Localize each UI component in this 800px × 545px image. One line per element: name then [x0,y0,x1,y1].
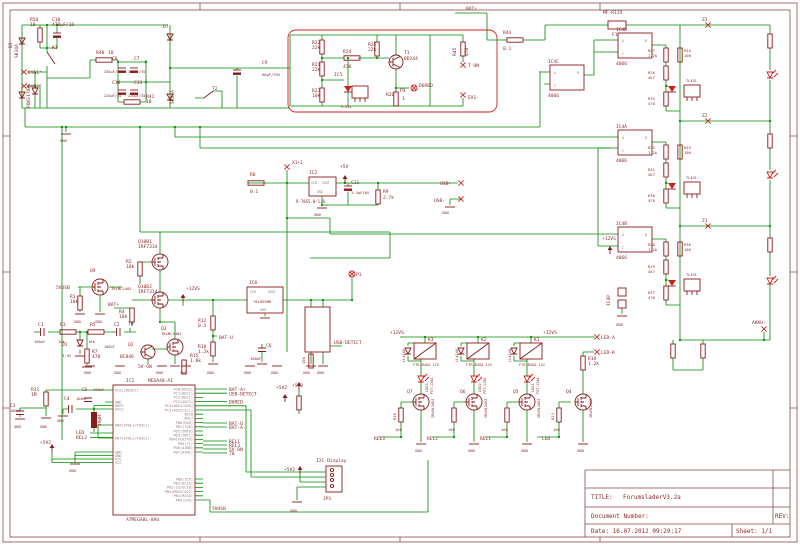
sch-label: PB6(XTAL1/TOSC1) [115,423,150,427]
sch-label: VIN [311,181,317,185]
sch-label: R5 [90,322,96,328]
sch-label: P6KE170AC [26,83,32,108]
sch-label: 22k [312,45,321,51]
sch-label: LED-A [601,335,615,341]
sch-label: K1 [534,337,540,343]
sch-label: FOT-120A [430,378,434,394]
sch-label: 4066 [616,61,627,67]
sch-label: IRLML2402 [537,399,541,418]
sch-label: 1.2k [588,361,599,367]
sch-label: +12VS [543,330,557,336]
sch-label: ATMEGA8L-8AU [126,517,159,523]
sch-label: IC4A [616,124,627,130]
sch-label: LED-K [601,350,615,356]
sch-label: BC846 [120,354,134,360]
sch-label: +5V2 [276,385,287,391]
sch-label: T0 [128,321,134,327]
sch-label: 10 [146,99,152,105]
sch-label: 10 [108,50,114,56]
sch-label: K3 [428,337,434,343]
sch-label: USB+ [440,181,451,187]
sch-label: GND [577,448,585,453]
tl431-reference [344,86,352,92]
sch-label: 470 [464,47,470,56]
sch-label: +5V [340,164,349,170]
sch-label: MEGA48-AI [148,378,173,384]
supply-arrow [343,175,348,183]
sch-label: GND [616,322,624,327]
sch-label: 10 [30,22,36,28]
sch-label: GND [271,370,279,375]
sch-label: 4066 [548,93,559,99]
sch-label: T1 [404,50,410,56]
sch-label: R24 [343,49,352,55]
sch-label: 10k [312,93,321,99]
sch-label: X1+1 [292,160,303,166]
eagle-schematic-window: R5010C10470µF/16K1D5SK34ADYN1"DYN2"P6KE1… [0,0,800,545]
sch-label: LED [542,436,551,442]
sch-label: 22k [312,67,321,73]
sch-label: 10k [88,339,96,344]
sch-label: AVCC [115,407,124,411]
sch-label: A [622,136,624,140]
sch-label: 330µF/35 [104,70,121,74]
sch-label: A [554,71,556,75]
sch-label: Q7 [407,389,413,395]
title-block: TITLE: ForumsladerV3.2a Document Number:… [585,470,790,537]
sch-label: GND [290,508,298,513]
sch-label: PD7(AIN1) [174,450,193,454]
sch-label: P3 [400,88,406,94]
sch-label: T0 [229,451,235,457]
sch-label: A [622,233,624,237]
sch-label: GND [156,370,164,375]
sch-label: R40 [96,50,105,56]
mosfet [152,254,168,270]
sch-label: GND [303,370,311,375]
sch-label: 470 [92,354,101,360]
sch-label: IC2 [309,170,318,176]
sch-label: +12VS [186,286,200,292]
sch-label: SK34A [170,90,176,104]
resistor [38,28,42,42]
sch-label: B [577,71,579,75]
sch-label: Q5 [513,389,519,395]
sch-label: 10k [70,299,79,305]
sch-label: 1.2k [198,349,209,355]
sch-label: 100 [684,247,692,252]
sch-label: Q6 [460,389,466,395]
sch-label: 68µF/35V [262,72,281,77]
sch-label: 4k7 [648,269,655,274]
sch-label: B [645,233,647,237]
sch-label: FOT-120A [536,378,540,394]
sch-label: GND [468,448,476,453]
sch-label: VOUT [322,181,330,185]
sch-label: +5V2 [292,383,303,389]
sch-label: GND [40,424,48,429]
sch-label: BAT+ [466,6,477,12]
sch-label: MF-R135 [603,10,623,16]
sch-label: DYN1" [28,70,42,76]
sheet-value: Sheet: 1/1 [736,528,773,535]
sch-label: 1.2k [648,150,658,155]
drawing-frame [3,3,797,542]
sch-label: IC4C [548,59,559,65]
sch-label: FTR-B4GA 12V [466,363,493,367]
sch-label: EX1- [468,95,479,101]
title-label: TITLE: [591,494,613,501]
ic3-box [305,307,330,352]
sch-label: AKKU- [752,320,766,326]
sch-label: USB-DETECT [334,340,362,346]
sch-label: R16 [392,412,397,420]
mcu-pin-labels: PC6(/RESET)GNDAREFAVCCPB6(XTAL1/TOSC1)PB… [115,387,193,502]
sch-label: GND [84,370,92,375]
sch-label: C2 [114,322,120,328]
sch-label: 100nF [93,387,105,392]
sch-label: Z3 [702,17,708,23]
sch-label: 0.1 [503,46,512,52]
transistor [389,55,403,69]
sch-label: 10k [126,264,135,270]
sch-label: IRLML2402 [111,286,132,291]
sch-label: 10k [501,427,509,432]
sch-label: 100nF [76,396,88,401]
doc-number-label: Document Number: [591,513,649,520]
sch-label: IC4B [616,221,627,227]
sch-label: 10µH [97,415,103,426]
sch-label: 2.7k [383,195,394,201]
sch-label: 0.1 [198,323,207,329]
sch-label: BAT-U [219,335,233,341]
sch-label: C4 [64,396,70,402]
sch-label: C6 [266,343,272,349]
sch-label: R-78S5.0-1.0 [296,199,325,204]
sch-label: 10k [395,427,403,432]
sch-label: 22k [368,47,377,53]
sch-label: 100 [684,150,692,155]
sch-label: 10k [448,427,456,432]
sch-label: GND [260,308,266,312]
sch-label: FTR-B4GA 12V [519,363,546,367]
sch-label: IRLML2402 [589,399,593,418]
sch-label: C8 [112,56,118,62]
sch-label: IRLML2402 [484,399,488,418]
date-value: Date: 16.07.2012 09:29:17 [591,528,682,535]
sch-label: GND [207,370,215,375]
sch-label: GND [317,370,325,375]
sch-label: +12VS [602,236,616,242]
sch-label: BAT+ [108,302,119,308]
sch-label: BAT-A- [229,425,246,431]
sch-label: 1M [31,392,37,398]
sch-label: LL4148 [455,349,459,362]
sch-label: TL431 [686,79,697,83]
sch-label: 3.3µF16V [351,190,370,195]
sch-label: SK34A [14,44,20,58]
sch-label: IRLML2402 [161,331,182,336]
sch-label: 10k [301,356,306,364]
sch-label: C [554,84,556,88]
sch-label: C9 [262,60,268,66]
sch-label: C [622,52,624,56]
sch-label: C [622,246,624,250]
sch-label: T-ON [468,63,479,69]
sch-label: VIN [250,290,256,294]
sch-label: C1 [38,322,44,328]
sch-label: REL2 [427,436,438,442]
sch-label: D6RED [419,83,433,89]
sch-label: Q9 [90,268,96,274]
title-value: ForumsladerV3.2a [623,494,681,501]
sch-label: GND [415,448,423,453]
sch-label: 100 [684,53,692,58]
sch-label: D5 [8,42,14,48]
sch-label: IC5 [334,72,343,78]
sch-label: 1.2k [648,53,658,58]
sch-label: IRLML2402 [431,399,435,418]
sch-label: USB-DETECT [229,392,257,398]
sch-label: GND [442,210,450,215]
schematic-labels: R5010C10470µF/16K1D5SK34ADYN1"DYN2"P6KE1… [8,6,766,523]
sch-label: 100nF [34,339,46,344]
sch-label: D6RED [229,400,243,406]
sch-label: GND [74,319,82,324]
sch-label: C5 [82,387,88,393]
sch-label: C7 [134,56,140,62]
sch-label: 5V-ON [138,364,152,370]
sch-label: GND [317,190,323,194]
sch-label: IC4P [606,295,612,306]
sch-label: 1.8k [190,358,201,364]
sch-label: LED2 [478,383,482,392]
sch-label: GND [57,418,65,423]
sch-label: REL1 [480,436,491,442]
sch-label: A [622,39,624,43]
sch-label: REL2 [76,435,87,441]
sch-label: LL4148 [508,349,512,362]
sch-label: LL4148 [402,349,406,362]
sch-label: USB- [434,198,445,204]
sch-label: R8 [250,172,256,178]
sch-label: R45 [452,47,458,56]
sch-label: VCC [115,461,122,465]
sch-label: REL3 [374,436,385,442]
sch-label: 470 [343,64,352,70]
sch-label: C14 [112,80,121,86]
sch-label: LED3 [425,383,429,392]
sch-label: K1 [52,45,58,51]
sch-label: 220µF/35 [128,94,145,98]
sch-label: 10k [119,314,128,320]
sch-label: 4066 [616,255,627,261]
sch-label: 330µF/35 [128,70,145,74]
sch-label: 470 [648,295,656,300]
sch-label: GND [95,319,103,324]
sch-label: PB7(XTAL2/TOSC2) [115,436,150,440]
sch-label: C13 [134,80,143,86]
capacitor [53,33,61,38]
sch-label: GND [69,468,77,473]
sch-label: D1 [62,342,68,348]
relay [414,343,436,359]
sch-label: 78L05SMD [253,299,272,304]
led [418,374,429,382]
sch-label: GND [314,212,322,217]
sch-label: 5VUSB [56,285,70,291]
sch-label: GND [60,138,68,143]
sch-label: R20 [386,92,395,98]
sch-label: +12VS [390,330,404,336]
sch-label: GND [521,448,529,453]
sch-label: I2C-Display [316,458,347,464]
sch-label: IC4D [616,27,627,33]
sch-label: Q2 [128,342,134,348]
sch-label: R3 [60,322,66,328]
sch-label: FTR-B4GA 12V [413,363,440,367]
sch-label: IC1 [126,378,135,384]
sch-label: 0.1 [250,189,259,195]
sch-label: GND [114,370,122,375]
sch-label: Q4 [566,389,572,395]
sch-label: R9 [383,189,389,195]
sch-label: 100nF [104,345,115,349]
sch-label: GND [180,370,188,375]
sch-label: TL431 [340,104,352,109]
sch-label: 470 [648,101,656,106]
sch-label: VOUT [268,290,276,294]
sch-label: TL431 [686,176,697,180]
sch-label: C11 [351,180,360,186]
inductor [91,412,97,428]
sch-label: Z1 [702,218,708,224]
sch-label: IC6 [249,280,258,286]
sch-label: B [645,136,647,140]
sch-label: K2 [481,337,487,343]
sch-label: +5V2 [284,467,295,473]
sch-label: GND [244,370,252,375]
sch-label: 1 [402,96,405,102]
sch-label: 4k7 [648,172,655,177]
sch-label: PC6(/RESET) [115,388,139,392]
sch-label: 100nF [250,356,262,361]
rev-label: REV: [775,513,789,520]
sch-label: PB5(SCK) [176,498,193,502]
sch-label: JP1 [323,496,332,502]
sch-label: B [645,39,647,43]
sch-label: D7 [163,24,169,30]
sch-label: 4k7 [648,75,655,80]
sch-label: LED1 [531,383,535,392]
sch-label: +5V2 [40,440,51,446]
sch-label: IRF7314 [138,244,158,250]
schematic-canvas: R5010C10470µF/16K1D5SK34ADYN1"DYN2"P6KE1… [0,0,800,545]
sch-label: R44 [503,30,512,36]
sch-label: 5VUSB [212,506,226,512]
sch-label: 10k [553,427,561,432]
sch-label: 1.2k [648,247,658,252]
sch-label: IRF7314 [138,289,158,295]
sch-label: 4066 [616,158,627,164]
sch-label: FOT-120A [483,378,487,394]
sch-label: C [622,149,624,153]
sch-label: Z2 [702,113,708,119]
sch-label: 220µF/35 [104,94,121,98]
sch-label: 470µF/16 [52,22,74,28]
sch-label: 100nF [10,409,21,413]
sch-label: GND [14,424,22,429]
junction-dots [46,24,771,438]
sch-label: T2 [212,86,218,92]
sch-label: R13 [550,413,555,420]
sch-label: 3.9V [62,353,72,358]
sch-label: 470 [648,198,656,203]
sch-label: P1 [356,272,362,278]
sch-label: TL431 [686,273,697,277]
sch-label: BD244 [404,56,418,62]
